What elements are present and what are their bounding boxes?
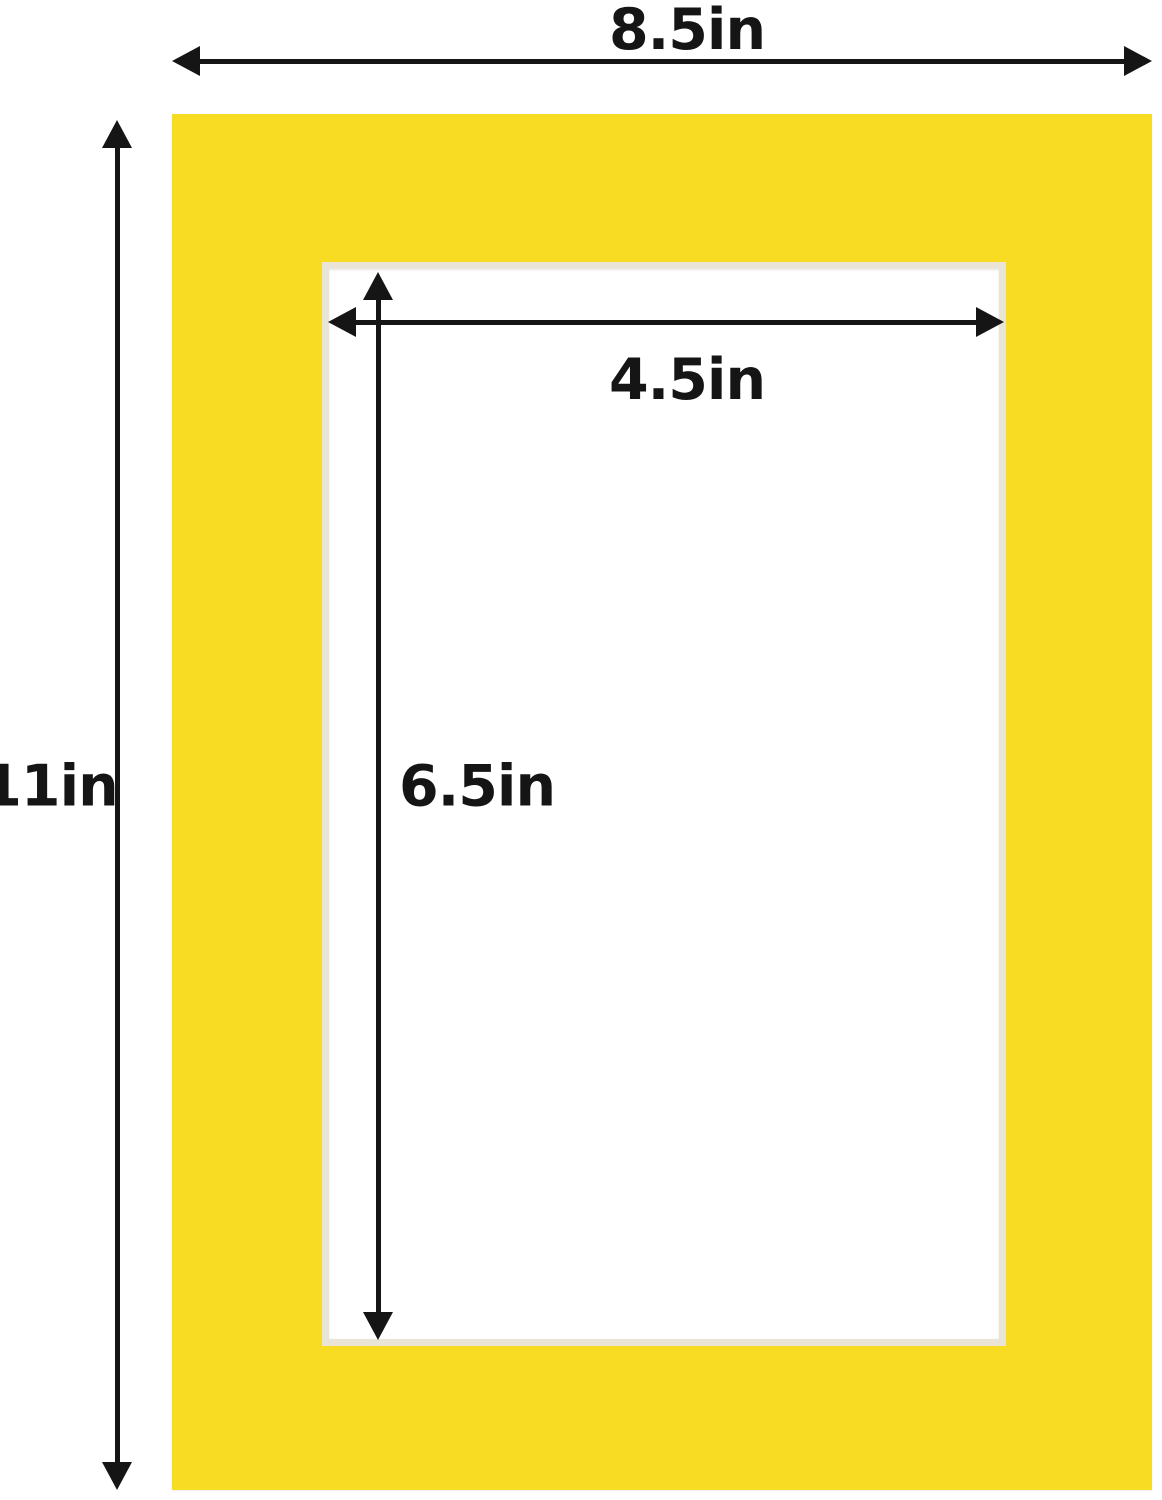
mat-dimension-diagram: 8.5in 11in 4.5in 6.5in (0, 0, 1162, 1500)
arrowhead-down-icon (102, 1462, 132, 1490)
arrow-line (348, 320, 984, 325)
opening-height-label: 6.5in (399, 759, 555, 816)
outer-width-label: 8.5in (609, 2, 765, 59)
outer-height-label: 11in (0, 759, 118, 816)
arrow-line (192, 59, 1132, 64)
arrowhead-down-icon (363, 1312, 393, 1340)
arrowhead-right-icon (976, 307, 1004, 337)
arrow-line (376, 292, 381, 1320)
arrowhead-right-icon (1124, 46, 1152, 76)
opening-width-label: 4.5in (609, 352, 765, 409)
arrow-line (115, 140, 120, 1470)
